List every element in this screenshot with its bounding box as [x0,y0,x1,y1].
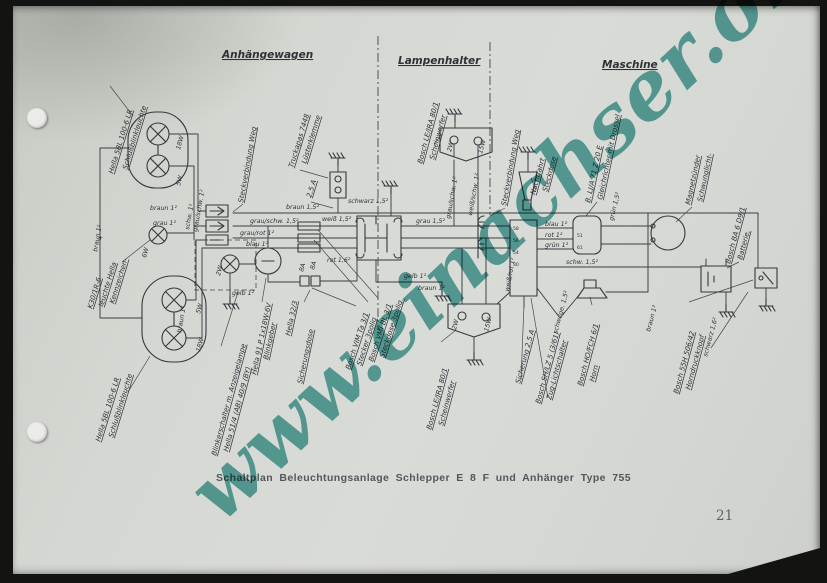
bulb-2w-headlight-right: 2W [451,318,461,330]
wire-braun-b: braun 1² [418,285,445,292]
wire-grau15: grau 1,5² [416,218,445,225]
battery [701,266,731,292]
ground-icon [759,298,775,311]
label-fuse-25a-right: Sicherung 2,5 A [514,329,536,385]
wire-blau-c: blau 1² [545,221,568,228]
pin-61: 61 [577,245,583,251]
trailer-plug-connector [206,205,228,245]
wire-grau: grau 1² [153,220,176,227]
bulb-2w-indicator: 2W [215,264,225,276]
wire-weiss: weiß 1,5² [322,216,352,223]
label-fuse-8a-1: 8A [298,263,307,273]
label-horn-1: Horn [588,364,600,382]
horn [577,280,607,298]
punch-hole-bottom [27,422,47,442]
ground-icon [382,181,398,194]
fuse-box [300,276,320,286]
bulb-15w-headlight-left: 15W [477,138,488,154]
wire-gelb-a: gelb 1² [232,290,255,297]
label-fuse-box-2: Hella 32/3 [284,300,299,337]
section-title-trailer: Anhängewagen [221,49,313,61]
flywheel-magneto [651,216,685,250]
pin-51: 51 [577,233,583,239]
section-title-lampholder: Lampenhalter [398,55,481,67]
pin-58: 58 [513,226,519,232]
wire-gelb-b: gelb 1² [404,273,427,280]
inline-connectors-3pole [298,222,320,252]
wire-braun-c: braun 1² [645,304,659,332]
wire-gruen1: grün 1² [545,242,569,249]
wire-braun-a: braun 1² [150,205,177,212]
horn-button [755,268,777,288]
wire-rot1: rot 1² [545,231,563,239]
ground-icon [467,352,483,365]
wire-grau-schw: grau/schw. 1,5² [250,218,299,225]
section-title-machine: Maschine [602,59,658,71]
machine-plug-connector [478,212,484,258]
ground-icon [446,109,462,122]
bulb-15w-headlight-right: 15W [483,316,494,332]
wire-rot: rot 1,6² [327,256,351,264]
ground-icon [223,296,239,309]
label-fuse-box-1: Sicherungsdose [296,328,315,384]
wire-grau-rot: grau/rot 1² [240,229,274,237]
figure-caption: Schaltplan Beleuchtungsanlage Schlepper … [216,472,631,484]
ground-icon [519,147,535,160]
punch-hole-top [27,108,47,128]
wire-blau-bus: blau 1² [246,241,269,248]
pin-56: 56 [513,238,519,244]
bulb-5w-bottom: 5W [195,302,205,314]
wire-braun-bus: braun 1,5² [286,204,319,211]
wire-gruen15: grün 1,5² [608,191,622,221]
terminal-strip [330,172,346,198]
wiring-diagram: Anhängewagen Lampenhalter Maschine Schlu… [0,0,827,583]
wire-weiss-schw: weiß/schw. 1² [467,172,481,216]
wire-braun-e: braun 1² [176,305,188,333]
label-plug-connection-left: Steckverbindung Weg [237,125,258,203]
bulb-6w: 6W [141,246,151,258]
bulb-18w-top: 18W [175,134,186,150]
page-number: 21 [716,508,733,524]
wire-schwarz: schwarz 1,5² [348,198,389,205]
flasher-relay [255,248,281,274]
ground-icon [329,153,345,166]
label-fuse-8a-2: 8A [309,261,318,271]
turn-signal-switch [356,216,402,260]
license-plate-lamp [149,226,167,244]
wire-schw15: schw. 1,5² [566,259,598,266]
label-plug-connection-right: Steckverbindung Weg [500,128,521,206]
pin-54: 54 [513,250,519,256]
pin-30: 30 [513,262,519,268]
label-fuse-25a-left: 2,5 A [305,179,318,199]
indicator-lamp [221,255,239,273]
wire-labels: braun 1² grau 1² braun 1,5² grau/schw. 1… [92,172,719,357]
bulb-18w-bottom: 18W [195,336,206,352]
